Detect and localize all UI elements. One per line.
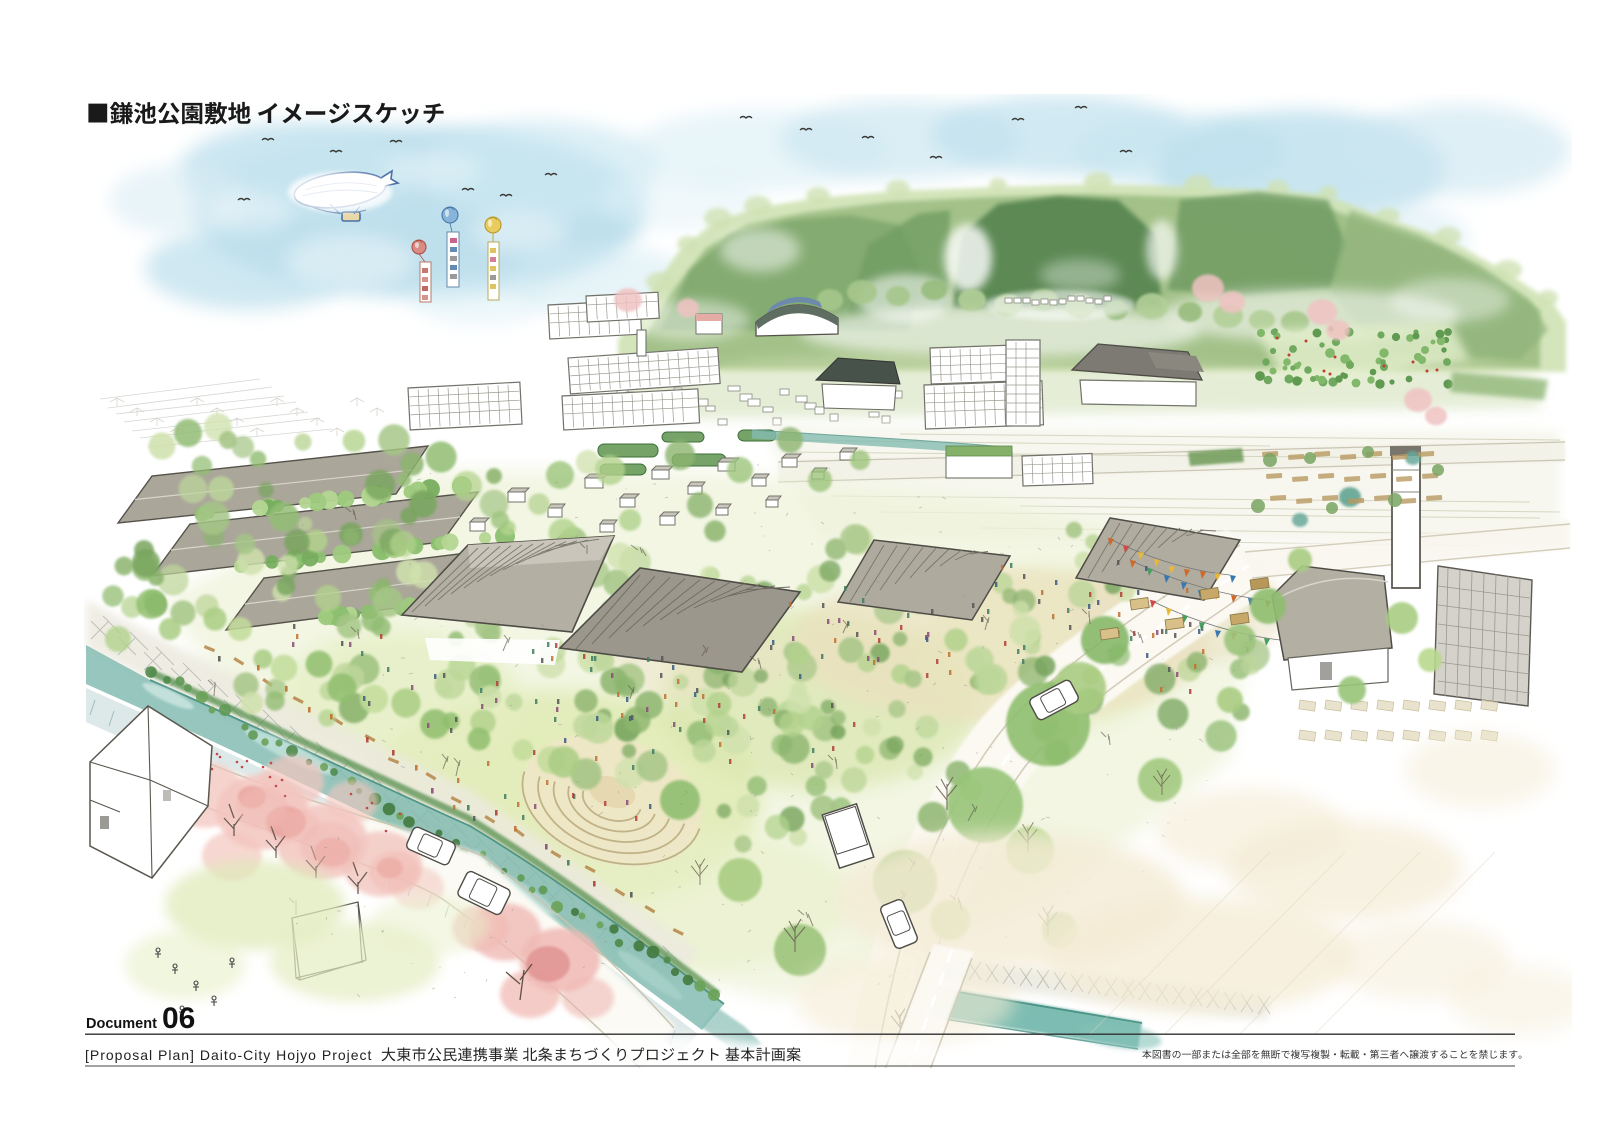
svg-text:[Proposal Plan] Daito-City Ho: [Proposal Plan] Daito-City Hojyo Project <box>85 1047 372 1063</box>
svg-text:Document: Document <box>86 1016 157 1032</box>
svg-text:06: 06 <box>162 1002 195 1035</box>
